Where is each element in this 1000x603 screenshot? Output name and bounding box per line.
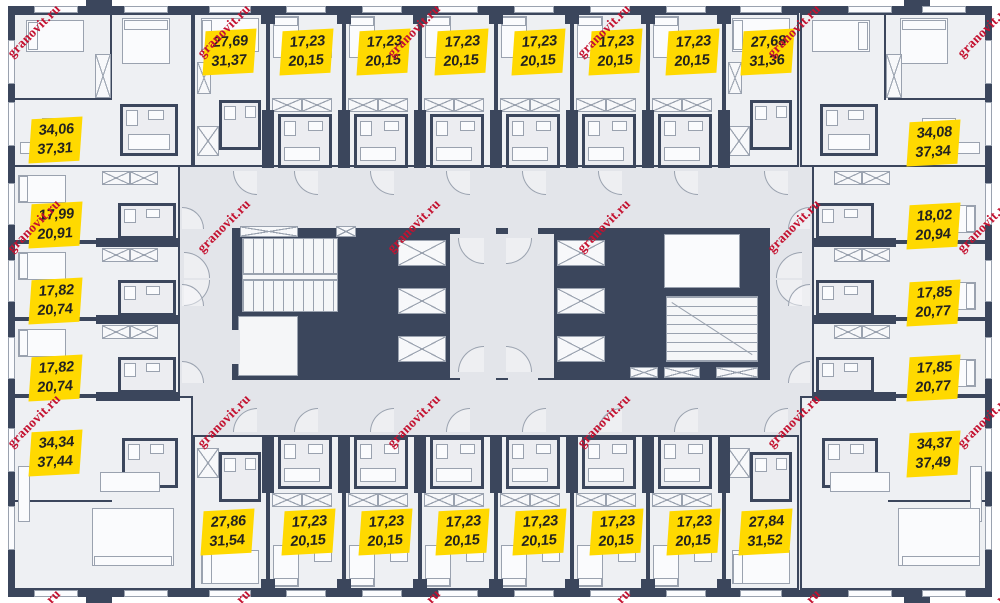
shower: [512, 468, 548, 482]
window: [666, 590, 706, 597]
window: [8, 506, 15, 550]
shower: [284, 147, 320, 161]
wall-pier: [262, 110, 274, 168]
kitchen-unit: [197, 448, 219, 478]
area-value-bottom: 20,15: [521, 531, 558, 552]
toilet: [822, 286, 834, 300]
pillow: [202, 554, 212, 584]
shower: [284, 468, 320, 482]
apartment-area-label[interactable]: 17,2320,15: [589, 509, 643, 556]
window: [666, 6, 706, 13]
window: [362, 6, 402, 13]
area-value-bottom: 31,54: [209, 531, 246, 552]
wall-pier: [96, 315, 180, 324]
wall-pier: [338, 110, 350, 168]
window: [8, 260, 15, 302]
apartment-area-label[interactable]: 27,8431,52: [738, 509, 792, 556]
area-value-top: 17,23: [522, 512, 559, 533]
sink: [148, 110, 164, 120]
area-value-bottom: 37,34: [915, 142, 952, 163]
sink: [146, 209, 160, 218]
machine-room: [664, 234, 740, 288]
wall-pier: [565, 8, 579, 24]
kitchen-unit: [130, 171, 158, 185]
kitchen-unit: [530, 98, 560, 112]
kitchen-unit: [576, 98, 606, 112]
wall-pier: [338, 435, 350, 493]
area-value-top: 17,23: [599, 512, 636, 533]
area-value-bottom: 31,37: [211, 51, 248, 72]
sink: [848, 110, 864, 120]
door-opening: [460, 372, 496, 380]
pillow: [124, 20, 168, 30]
sink: [850, 444, 864, 454]
wall-pier: [718, 435, 730, 493]
apartment-area-label[interactable]: 17,2320,15: [279, 29, 333, 76]
window: [740, 590, 782, 597]
window: [848, 6, 892, 13]
floor-plan: 27,6931,3717,2320,1517,2320,1517,2320,15…: [0, 0, 1000, 603]
window: [8, 337, 15, 379]
door-opening: [508, 228, 538, 236]
window: [740, 6, 782, 13]
kitchen-unit: [500, 98, 530, 112]
kitchen-unit: [378, 493, 408, 507]
toilet: [755, 458, 767, 472]
balcony-divider: [86, 0, 112, 6]
toilet: [822, 363, 834, 377]
pillow: [858, 22, 868, 50]
window: [8, 102, 15, 146]
kitchen-unit: [862, 171, 890, 185]
sink: [844, 286, 858, 295]
area-value-bottom: 20,15: [598, 531, 635, 552]
kitchen-unit: [424, 98, 454, 112]
window: [438, 590, 478, 597]
sink: [776, 458, 787, 470]
toilet: [664, 121, 676, 136]
kitchen-unit: [348, 98, 378, 112]
toilet: [512, 444, 524, 459]
pillow: [902, 556, 980, 566]
stairwell-flight: [242, 238, 338, 274]
partition-wall: [15, 98, 112, 100]
area-value-bottom: 31,52: [747, 531, 784, 552]
area-value-bottom: 37,44: [37, 452, 74, 473]
pillow: [19, 176, 28, 202]
toilet: [124, 209, 136, 223]
wall-pier: [262, 435, 274, 493]
balcony-divider: [86, 597, 112, 603]
wall-pier: [337, 579, 351, 595]
door-opening: [232, 330, 240, 364]
kitchen-unit: [454, 493, 484, 507]
kitchen-unit: [272, 98, 302, 112]
kitchen-unit: [682, 493, 712, 507]
pillow: [733, 20, 743, 50]
area-value-top: 27,84: [748, 512, 785, 533]
wall-pier: [96, 392, 180, 401]
area-value-bottom: 37,31: [37, 139, 74, 160]
kitchen-unit: [197, 126, 219, 156]
area-value-bottom: 20,15: [675, 531, 712, 552]
sink: [308, 444, 323, 454]
toilet: [436, 121, 448, 136]
toilet: [755, 106, 767, 120]
kitchen-unit: [500, 493, 530, 507]
floor-plan-page: 27,6931,3717,2320,1517,2320,1517,2320,15…: [0, 0, 1000, 603]
toilet: [822, 209, 834, 223]
area-value-top: 34,06: [38, 120, 75, 141]
area-value-top: 18,02: [916, 206, 953, 227]
area-value-bottom: 20,15: [674, 51, 711, 72]
wall-pier: [490, 110, 502, 168]
window: [848, 590, 892, 597]
shower: [512, 147, 548, 161]
toilet: [284, 444, 296, 459]
apartment-area-label[interactable]: 34,0837,34: [906, 120, 960, 167]
sink: [146, 286, 160, 295]
pillow: [274, 17, 298, 26]
pillow: [426, 578, 450, 586]
shower: [588, 468, 624, 482]
vent-shaft: [716, 367, 758, 378]
apartment-area-label[interactable]: 17,8220,74: [28, 278, 82, 325]
sink: [150, 444, 164, 454]
window: [985, 102, 992, 146]
toilet: [124, 286, 136, 300]
area-value-top: 17,23: [675, 32, 712, 53]
sink: [245, 458, 256, 470]
wall-pier: [261, 579, 275, 595]
sink: [612, 121, 627, 131]
pillow: [350, 578, 374, 586]
shower: [588, 147, 624, 161]
window: [922, 590, 966, 597]
vent-shaft: [664, 367, 700, 378]
wall-pier: [490, 435, 502, 493]
area-value-top: 27,86: [210, 512, 247, 533]
area-value-top: 17,23: [445, 512, 482, 533]
apartment-area-label[interactable]: 17,2320,15: [434, 29, 488, 76]
apartment-area-label[interactable]: 27,8631,54: [200, 509, 254, 556]
kitchen-unit: [102, 171, 130, 185]
sink: [460, 444, 475, 454]
sink: [688, 444, 703, 454]
area-value-top: 17,23: [521, 32, 558, 53]
pillow: [19, 330, 28, 356]
toilet: [360, 121, 372, 136]
area-value-top: 17,23: [444, 32, 481, 53]
kitchen-unit: [102, 248, 130, 262]
kitchen-unit: [834, 171, 862, 185]
apartment-area-label[interactable]: 34,3437,44: [28, 430, 82, 477]
area-value-top: 17,82: [38, 358, 75, 379]
pillow: [94, 556, 172, 566]
pillow: [578, 578, 602, 586]
kitchen-unit: [862, 325, 890, 339]
apartment-area-label[interactable]: 34,0637,31: [28, 117, 82, 164]
wall-pier: [642, 435, 654, 493]
pillow: [350, 17, 374, 26]
area-value-top: 17,23: [368, 512, 405, 533]
apartment-area-label[interactable]: 17,2320,15: [511, 29, 565, 76]
wall-pier: [489, 579, 503, 595]
sink: [384, 121, 399, 131]
window: [922, 6, 966, 13]
wall-pier: [566, 110, 578, 168]
kitchen-unit: [302, 493, 332, 507]
toilet: [512, 121, 524, 136]
kitchen-unit: [652, 98, 682, 112]
wall-pier: [96, 238, 180, 247]
area-value-top: 17,85: [916, 358, 953, 379]
balcony-divider: [904, 597, 930, 603]
area-value-bottom: 20,15: [520, 51, 557, 72]
wall-pier: [565, 579, 579, 595]
vestibule: [238, 316, 298, 376]
elevator: [557, 336, 605, 362]
kitchen-unit: [272, 493, 302, 507]
apartment-area-label[interactable]: 17,2320,15: [666, 509, 720, 556]
kitchen-unit: [530, 493, 560, 507]
apartment-area-label[interactable]: 17,2320,15: [512, 509, 566, 556]
apartment-area-label[interactable]: 17,8520,77: [906, 355, 960, 402]
apartment-area-label[interactable]: 17,2320,15: [281, 509, 335, 556]
window: [8, 183, 15, 225]
wall-pier: [812, 392, 896, 401]
vent-shaft: [240, 226, 298, 237]
window: [286, 6, 326, 13]
kitchen-unit: [834, 325, 862, 339]
toilet: [664, 444, 676, 459]
kitchen-unit: [682, 98, 712, 112]
apartment-area-label[interactable]: 17,2320,15: [358, 509, 412, 556]
kitchen-unit: [606, 98, 636, 112]
window: [985, 337, 992, 379]
kitchen-unit: [728, 126, 750, 156]
kitchen-unit: [302, 98, 332, 112]
window: [514, 6, 554, 13]
sink: [844, 209, 858, 218]
sink: [536, 444, 551, 454]
wall-pier: [641, 579, 655, 595]
wardrobe: [886, 54, 902, 98]
toilet: [828, 444, 840, 460]
bathtub: [128, 134, 170, 150]
toilet: [124, 363, 136, 377]
shower: [664, 147, 700, 161]
shower: [436, 147, 472, 161]
vent-shaft: [336, 226, 356, 237]
wall-pier: [566, 435, 578, 493]
kitchen-unit: [606, 493, 636, 507]
apartment-area-label[interactable]: 17,2320,15: [665, 29, 719, 76]
door-opening: [508, 372, 538, 380]
table: [830, 472, 890, 492]
kitchen-unit: [454, 98, 484, 112]
area-value-bottom: 20,77: [915, 302, 952, 323]
area-value-bottom: 20,15: [288, 51, 325, 72]
kitchen-unit: [728, 448, 750, 478]
area-value-bottom: 20,15: [597, 51, 634, 72]
kitchen-unit: [862, 248, 890, 262]
area-value-top: 17,82: [38, 281, 75, 302]
window: [124, 6, 168, 13]
area-value-bottom: 20,15: [443, 51, 480, 72]
wall-pier: [414, 435, 426, 493]
bathtub: [828, 134, 870, 150]
pillow: [19, 253, 28, 279]
pillow: [654, 578, 678, 586]
toilet: [360, 444, 372, 459]
window: [985, 40, 992, 84]
toilet: [588, 121, 600, 136]
elevator: [398, 336, 446, 362]
window: [985, 506, 992, 550]
area-value-top: 34,37: [916, 434, 953, 455]
elevator: [398, 288, 446, 314]
wall-pier: [717, 8, 731, 24]
toilet: [436, 444, 448, 459]
pillow: [966, 283, 975, 309]
pillow: [966, 360, 975, 386]
wall-pier: [718, 110, 730, 168]
apartment-area-label[interactable]: 18,0220,94: [906, 203, 960, 250]
area-value-bottom: 20,15: [367, 531, 404, 552]
window: [514, 590, 554, 597]
elevator: [557, 288, 605, 314]
window: [362, 590, 402, 597]
toilet: [224, 458, 236, 472]
shower: [664, 468, 700, 482]
sink: [776, 106, 787, 118]
sink: [245, 106, 256, 118]
toilet: [826, 110, 838, 126]
window: [985, 260, 992, 302]
toilet: [128, 444, 140, 460]
sink: [688, 121, 703, 131]
kitchen-unit: [576, 493, 606, 507]
toilet: [126, 110, 138, 126]
area-value-top: 17,85: [916, 283, 953, 304]
stairwell-flight: [242, 280, 338, 312]
wall-pier: [717, 579, 731, 595]
area-value-top: 34,08: [916, 123, 953, 144]
wall-pier: [489, 8, 503, 24]
kitchen-unit: [834, 248, 862, 262]
toilet: [284, 121, 296, 136]
sink: [536, 121, 551, 131]
area-value-top: 17,23: [289, 32, 326, 53]
wardrobe: [95, 54, 111, 98]
apartment-area-label[interactable]: 17,2320,15: [435, 509, 489, 556]
shower: [436, 468, 472, 482]
kitchen-unit: [424, 493, 454, 507]
wardrobe: [728, 62, 742, 94]
toilet: [224, 106, 236, 120]
wall-pier: [261, 8, 275, 24]
shower: [360, 147, 396, 161]
pillow: [733, 554, 743, 584]
shower: [360, 468, 396, 482]
area-value-bottom: 20,77: [915, 377, 952, 398]
sink: [612, 444, 627, 454]
sink: [460, 121, 475, 131]
kitchen-unit: [348, 493, 378, 507]
area-value-bottom: 20,94: [915, 225, 952, 246]
wall-pier: [641, 8, 655, 24]
pillow: [902, 20, 946, 30]
kitchen-unit: [102, 325, 130, 339]
pillow: [502, 17, 526, 26]
area-value-top: 34,34: [38, 433, 75, 454]
wall-pier: [337, 8, 351, 24]
wall-pier: [414, 110, 426, 168]
pillow: [502, 578, 526, 586]
wall-pier: [642, 110, 654, 168]
sink: [844, 363, 858, 372]
area-value-bottom: 20,15: [444, 531, 481, 552]
apartment-area-label[interactable]: 17,8520,77: [906, 280, 960, 327]
partition-wall: [888, 98, 985, 100]
window: [985, 428, 992, 472]
area-value-bottom: 20,74: [37, 300, 74, 321]
pillow: [274, 578, 298, 586]
kitchen-unit: [378, 98, 408, 112]
kitchen-unit: [652, 493, 682, 507]
sink: [308, 121, 323, 131]
sink: [146, 363, 160, 372]
kitchen-unit: [130, 325, 158, 339]
area-value-top: 17,23: [291, 512, 328, 533]
table: [100, 472, 160, 492]
area-value-bottom: 37,49: [915, 453, 952, 474]
wall-pier: [812, 315, 896, 324]
window: [124, 590, 168, 597]
area-value-top: 17,23: [676, 512, 713, 533]
door-opening: [460, 228, 496, 236]
vent-shaft: [630, 367, 658, 378]
apartment-area-label[interactable]: 34,3737,49: [906, 431, 960, 478]
window: [286, 590, 326, 597]
area-value-bottom: 20,15: [290, 531, 327, 552]
kitchen-unit: [130, 248, 158, 262]
pillow: [654, 17, 678, 26]
wall-pier: [812, 238, 896, 247]
